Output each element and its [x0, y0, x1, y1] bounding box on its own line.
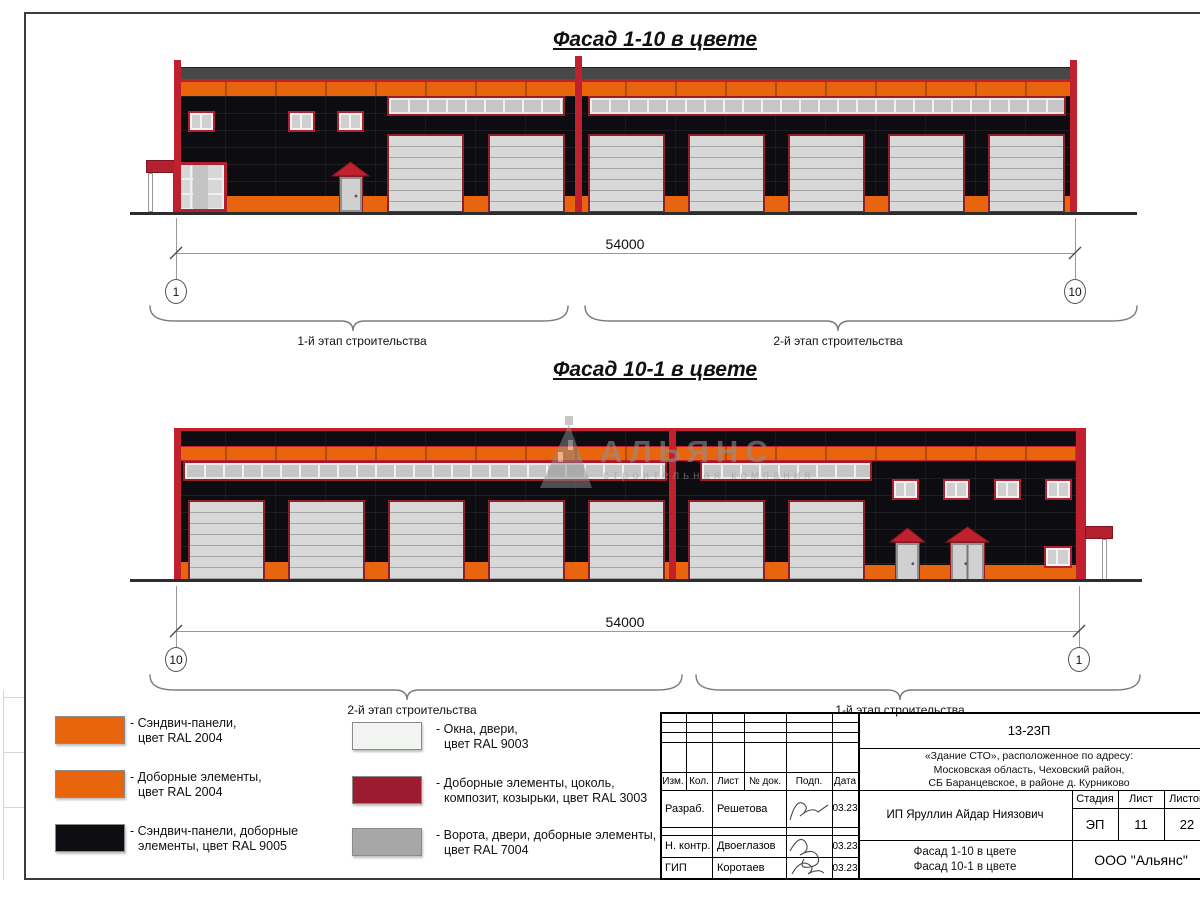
facade1-title: Фасад 1-10 в цвете [430, 28, 880, 52]
tb-date: 03.23 [832, 835, 858, 857]
garage-door [488, 134, 565, 213]
tb-line [712, 712, 713, 880]
steel-post [575, 56, 582, 212]
tb-col-data: Дата [832, 772, 858, 790]
window [1045, 479, 1072, 500]
legend-swatch-orange [55, 716, 125, 744]
tb-col-kol: Кол. [686, 772, 712, 790]
tb-stage-value: ЭП [1072, 808, 1118, 840]
plinth [565, 562, 588, 580]
margin-line [3, 690, 4, 880]
frame-top [24, 12, 1200, 14]
tb-line [660, 742, 858, 743]
watermark-subtitle: строительная компания [603, 470, 814, 482]
legend-label: - Доборные элементы, цоколь, композит, к… [436, 776, 676, 806]
tb-project-line: СБ Баранцевское, в районе д. Курниково [858, 777, 1200, 791]
corner-trim [1076, 431, 1086, 580]
frame-left [24, 12, 26, 880]
axis-bubble: 10 [1064, 279, 1086, 304]
dimension-value: 54000 [525, 614, 725, 630]
plinth [365, 562, 388, 580]
window [1044, 546, 1072, 568]
legend-line: - Ворота, двери, доборные элементы, [436, 828, 686, 843]
tb-stage-label: Стадия [1072, 790, 1118, 808]
legend-line: цвет RAL 9003 [436, 737, 666, 752]
axis-bubble: 1 [165, 279, 187, 304]
tb-date: 03.23 [832, 790, 858, 827]
window [994, 479, 1021, 500]
garage-door [688, 500, 765, 581]
tb-col-doc: № док. [744, 772, 786, 790]
plinth [464, 196, 488, 212]
tb-listov-label: Листов [1164, 790, 1200, 808]
window [337, 111, 364, 132]
plinth [676, 562, 688, 580]
tb-client: ИП Яруллин Айдар Ниязович [858, 790, 1072, 840]
margin-line [3, 752, 24, 753]
plinth [565, 196, 575, 212]
tb-project-line: «Здание СТО», расположенное по адресу: [858, 750, 1200, 764]
legend-line: - Доборные элементы, [130, 770, 345, 785]
ground-line [130, 212, 1137, 215]
plinth [226, 196, 387, 212]
tb-line [660, 732, 858, 733]
dimension-line [176, 253, 1075, 254]
legend-line: - Окна, двери, [436, 722, 666, 737]
stage-label: 2-й этап строительства [728, 334, 948, 348]
margin-line [3, 807, 24, 808]
tb-listov-value: 22 [1164, 808, 1200, 840]
tb-line [660, 827, 858, 828]
garage-door [788, 134, 865, 213]
garage-door [188, 500, 265, 581]
margin-line [3, 697, 24, 698]
tb-name: Коротаев [714, 857, 786, 879]
entry-door [340, 177, 362, 212]
garage-door [488, 500, 565, 581]
legend-line: - Сэндвич-панели, [130, 716, 345, 731]
legend-line: цвет RAL 2004 [130, 785, 345, 800]
tb-line [660, 722, 858, 723]
tb-line [786, 712, 787, 880]
garage-door [388, 500, 465, 581]
facade1-orange-band [175, 82, 1077, 96]
garage-door [988, 134, 1065, 213]
tb-date: 03.23 [832, 857, 858, 879]
extension-line [176, 586, 177, 647]
tb-sheet-title: Фасад 1-10 в цвете Фасад 10-1 в цвете [858, 845, 1072, 880]
legend-line: цвет RAL 7004 [436, 843, 686, 858]
tb-col-podp: Подп. [786, 772, 832, 790]
tb-list-label: Лист [1118, 790, 1164, 808]
plinth [581, 196, 588, 212]
plinth [370, 196, 387, 212]
garage-door [387, 134, 464, 213]
legend-swatch-grey [352, 828, 422, 856]
axis-bubble: 1 [1068, 647, 1090, 672]
axis-bubble: 10 [165, 647, 187, 672]
legend-swatch-orange [55, 770, 125, 798]
steel-post [1070, 60, 1077, 212]
legend-line: цвет RAL 2004 [130, 731, 345, 746]
tb-project-line: Московская область, Чеховский район, [858, 764, 1200, 778]
plinth [665, 196, 688, 212]
legend-label: - Доборные элементы, цвет RAL 2004 [130, 770, 345, 800]
facade1-roof-band [175, 67, 1077, 79]
extension-line [176, 218, 177, 279]
drawing-sheet: Фасад 1-10 в цвете 54000 1 10 1-й этап с [0, 0, 1200, 900]
legend-line: - Доборные элементы, цоколь, [436, 776, 676, 791]
strip-glazing [183, 461, 667, 481]
plinth [265, 562, 288, 580]
plinth [965, 196, 988, 212]
strip-glazing [588, 96, 1066, 116]
legend-swatch-darkred [352, 776, 422, 804]
tb-col-list: Лист [712, 772, 744, 790]
tb-sheet-title-line: Фасад 1-10 в цвете [858, 845, 1072, 860]
legend-line: - Сэндвич-панели, доборные [130, 824, 360, 839]
plinth [865, 196, 888, 212]
flat-canopy [1085, 526, 1113, 539]
entrance-mid-panel [193, 165, 208, 209]
ground-line [130, 579, 1142, 582]
glazed-entrance [173, 162, 227, 212]
garage-door [288, 500, 365, 581]
window [188, 111, 215, 132]
facade2-title: Фасад 10-1 в цвете [430, 358, 880, 382]
tb-doc-number: 13-23П [858, 712, 1200, 748]
legend-label: - Ворота, двери, доборные элементы, цвет… [436, 828, 686, 858]
strip-glazing [387, 96, 565, 116]
garage-door [788, 500, 865, 581]
legend-swatch-black [55, 824, 125, 852]
tb-sheet-title-line: Фасад 10-1 в цвете [858, 860, 1072, 875]
legend-label: - Сэндвич-панели, доборные элементы, цве… [130, 824, 360, 854]
plinth [465, 562, 488, 580]
double-entry-door [951, 543, 984, 581]
tb-role: Н. контр. [662, 835, 712, 857]
garage-door [888, 134, 965, 213]
legend-label: - Сэндвич-панели, цвет RAL 2004 [130, 716, 345, 746]
legend-swatch-white [352, 722, 422, 750]
garage-door [588, 134, 665, 213]
legend-label: - Окна, двери, цвет RAL 9003 [436, 722, 666, 752]
tb-role: ГИП [662, 857, 712, 879]
window [892, 479, 919, 500]
plinth [181, 562, 188, 580]
flat-canopy [146, 160, 174, 173]
tb-col-izm: Изм. [660, 772, 686, 790]
steel-post [174, 60, 181, 212]
extension-line [1075, 218, 1076, 279]
steel-post [174, 428, 181, 580]
stage-label: 1-й этап строительства [252, 334, 472, 348]
plinth [765, 562, 788, 580]
legend-line: композит, козырьки, цвет RAL 3003 [436, 791, 676, 806]
canopy-post [148, 173, 153, 212]
tb-company: ООО "Альянс" [1072, 840, 1200, 880]
window [288, 111, 315, 132]
tb-role: Разраб. [662, 790, 712, 827]
watermark-logo-text: АЛЬЯНС [600, 434, 775, 470]
garage-door [588, 500, 665, 581]
tb-name: Решетова [714, 790, 786, 827]
canopy-post [1102, 539, 1107, 580]
legend-line: элементы, цвет RAL 9005 [130, 839, 360, 854]
dimension-line [176, 631, 1079, 632]
plinth [765, 196, 788, 212]
window [943, 479, 970, 500]
entry-door [896, 543, 919, 581]
stage-label: 2-й этап строительства [302, 703, 522, 717]
extension-line [1079, 586, 1080, 647]
tb-project: «Здание СТО», расположенное по адресу: М… [858, 749, 1200, 790]
tb-name: Двоеглазов [714, 835, 786, 857]
tb-list-value: 11 [1118, 808, 1164, 840]
dimension-value: 54000 [525, 236, 725, 252]
garage-door [688, 134, 765, 213]
